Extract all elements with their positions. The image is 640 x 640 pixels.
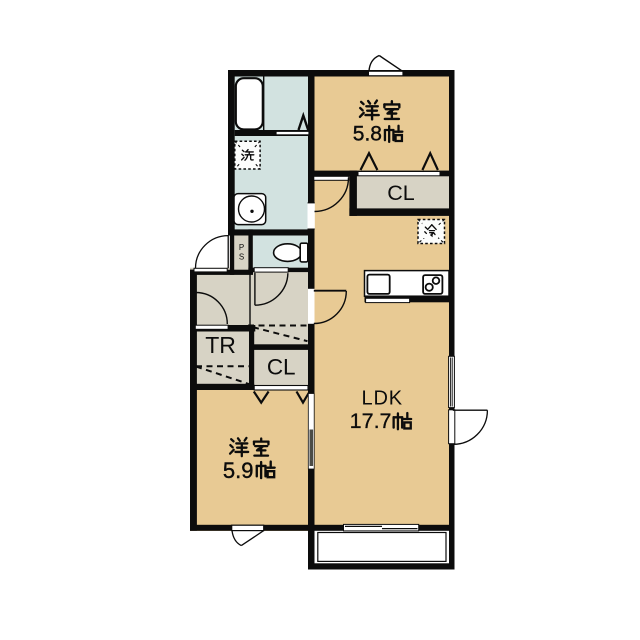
svg-text:CL: CL — [387, 181, 415, 205]
svg-text:CL: CL — [267, 354, 296, 379]
svg-text:LDK: LDK — [362, 387, 403, 409]
svg-text:5.9: 5.9 — [223, 458, 254, 483]
svg-text:S: S — [239, 252, 244, 261]
svg-text:TR: TR — [205, 332, 236, 358]
svg-text:5.8: 5.8 — [353, 123, 382, 146]
svg-text:P: P — [239, 243, 244, 252]
svg-text:17.7: 17.7 — [350, 409, 392, 433]
